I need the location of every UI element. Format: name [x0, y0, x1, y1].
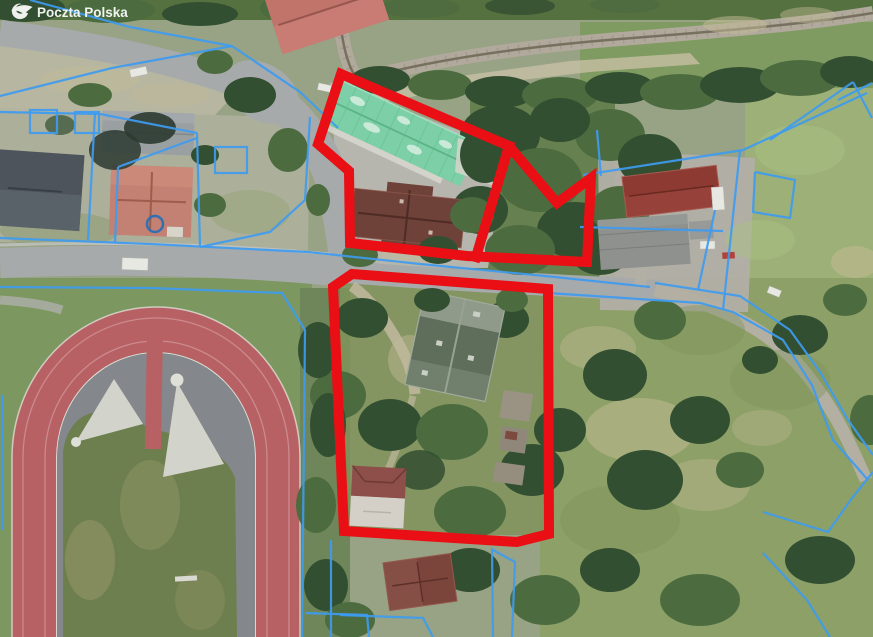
map-canvas[interactable]: Poczta Polska	[0, 0, 873, 637]
running-track	[12, 307, 300, 637]
aerial-imagery: Poczta Polska	[0, 0, 873, 637]
van-east	[711, 187, 725, 211]
truck-on-road	[122, 258, 148, 271]
watermark-label: Poczta Polska	[37, 5, 128, 20]
house-lower-pink-roof	[349, 466, 406, 529]
house-pink-roof	[109, 165, 193, 238]
house-bottom-brown-roof	[383, 554, 457, 611]
house-dark-gray-roof	[0, 149, 85, 231]
